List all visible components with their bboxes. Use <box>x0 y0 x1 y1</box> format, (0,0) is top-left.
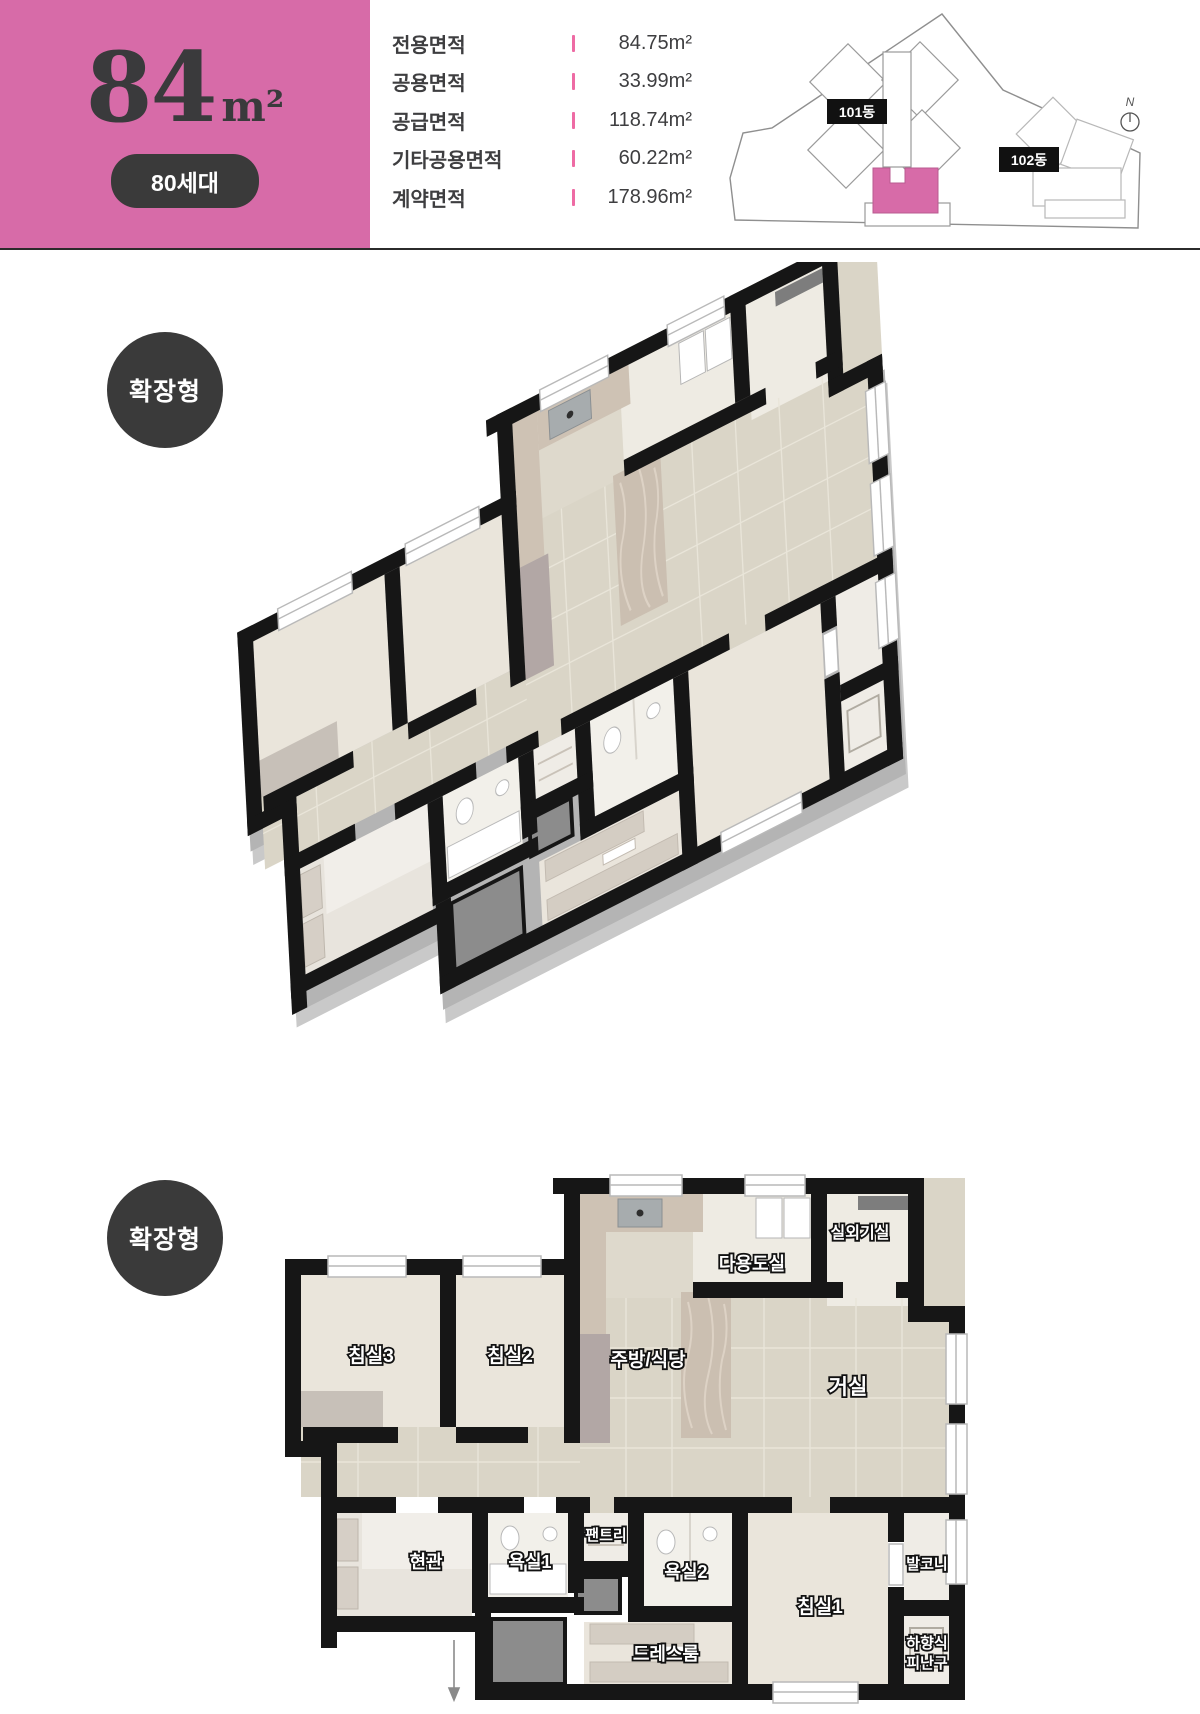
area-label: 계약면적 <box>392 183 550 212</box>
isometric-floorplan <box>100 262 1030 1102</box>
divider <box>572 35 575 52</box>
site-plan: 101동 102동 N <box>715 0 1155 240</box>
isometric-plan-group <box>233 262 909 1102</box>
area-value: 178.96m² <box>591 186 692 209</box>
unit-size-unit: m² <box>221 86 284 128</box>
area-value: 60.22m² <box>591 147 692 170</box>
room-label-pantry: 팬트리 <box>585 1527 626 1544</box>
svg-text:101동: 101동 <box>839 104 875 120</box>
room-label-living: 거실 <box>829 1376 868 1399</box>
unit-size-number: 84 <box>86 40 216 136</box>
table-row: 공급면적 118.74m² <box>392 101 692 140</box>
badge-label: 확장형 <box>129 1220 201 1256</box>
divider <box>572 150 575 167</box>
table-row: 계약면적 178.96m² <box>392 178 692 217</box>
svg-text:102동: 102동 <box>1011 152 1047 168</box>
room-label-entrance: 현관 <box>409 1552 443 1572</box>
room-label-balcony: 발코니 <box>906 1556 947 1573</box>
header-divider <box>0 248 1200 250</box>
highlighted-unit <box>873 168 938 213</box>
room-label-utility: 다용도실 <box>719 1254 785 1274</box>
divider <box>572 73 575 90</box>
room-label-bedroom3: 침실3 <box>348 1345 394 1367</box>
svg-text:N: N <box>1126 95 1135 109</box>
room-label-escape-1: 하향식 <box>906 1635 947 1652</box>
room-label-dressroom: 드레스룸 <box>633 1644 699 1664</box>
area-label: 전용면적 <box>392 29 550 58</box>
area-value: 84.75m² <box>591 32 692 55</box>
header: 84 m² 80세대 전용면적 84.75m² 공용면적 33.99m² 공급면… <box>0 0 1200 250</box>
building-101-label: 101동 <box>827 99 887 124</box>
room-label-bath2: 욕실2 <box>664 1562 707 1582</box>
room-label-escape-2: 피난구 <box>906 1655 948 1672</box>
table-row: 기타공용면적 60.22m² <box>392 140 692 179</box>
area-label: 공용면적 <box>392 67 550 96</box>
entrance-arrow-icon <box>449 1640 459 1700</box>
room-label-bedroom1: 침실1 <box>797 1596 843 1618</box>
households-badge: 80세대 <box>111 154 259 208</box>
unit-size-box: 84 m² 80세대 <box>0 0 370 248</box>
divider <box>572 112 575 129</box>
table-row: 전용면적 84.75m² <box>392 24 692 63</box>
area-table: 전용면적 84.75m² 공용면적 33.99m² 공급면적 118.74m² … <box>392 24 692 217</box>
room-label-bedroom2: 침실2 <box>487 1345 533 1367</box>
room-label-bath1: 욕실1 <box>508 1552 551 1572</box>
building-102-label: 102동 <box>999 147 1059 172</box>
area-value: 118.74m² <box>591 109 692 132</box>
compass-icon: N <box>1121 95 1139 131</box>
badge-extended-2d: 확장형 <box>107 1180 223 1296</box>
area-label: 공급면적 <box>392 106 550 135</box>
table-row: 공용면적 33.99m² <box>392 63 692 102</box>
divider <box>572 189 575 206</box>
unit-size: 84 m² <box>86 40 284 136</box>
room-label-kitchen: 주방/식당 <box>610 1349 686 1371</box>
area-label: 기타공용면적 <box>392 144 550 173</box>
area-value: 33.99m² <box>591 70 692 93</box>
room-label-outdoor-unit: 실외기실 <box>831 1224 890 1242</box>
flat-floorplan: 침실3 침실2 주방/식당 다용도실 실외기실 거실 현관 욕실1 팬트리 욕실… <box>258 1072 970 1708</box>
